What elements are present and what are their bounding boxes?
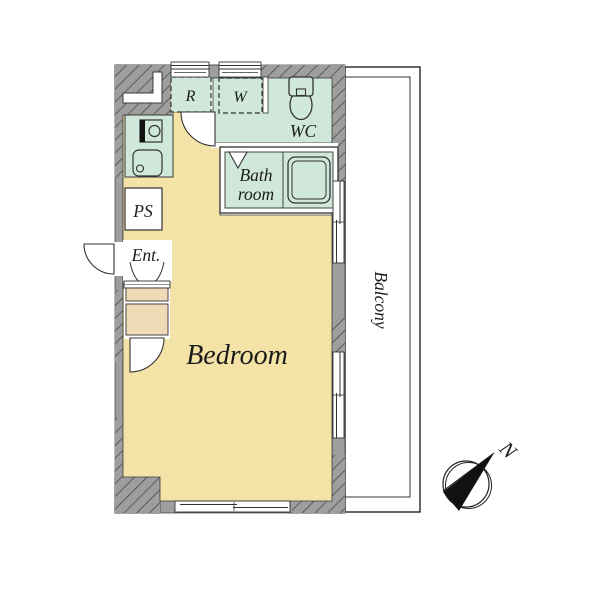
entrance-label: Ent. — [131, 245, 161, 265]
window-right-upper — [333, 181, 344, 263]
partition-wall — [263, 77, 268, 113]
refrigerator-label: R — [185, 88, 196, 105]
bathroom-label-line2: room — [238, 184, 274, 204]
washer-label: W — [233, 89, 248, 106]
window-top-right — [219, 62, 261, 77]
pipe-shaft-label: PS — [132, 201, 153, 221]
wc-label: WC — [290, 121, 317, 141]
floor-plan-drawing: R W WC Bath room PS Ent. Bedroom Balcony… — [0, 0, 600, 600]
window-bottom — [175, 501, 290, 512]
balcony-label: Balcony — [371, 271, 391, 329]
floor-plan-page: R W WC Bath room PS Ent. Bedroom Balcony… — [0, 0, 600, 600]
toilet-icon — [289, 77, 313, 120]
kitchen-area — [125, 115, 173, 177]
closet-area — [124, 281, 170, 339]
bathroom-label-line1: Bath — [239, 165, 272, 185]
window-top-left — [171, 62, 209, 77]
window-right-lower — [333, 352, 344, 438]
bedroom-label: Bedroom — [186, 340, 288, 371]
